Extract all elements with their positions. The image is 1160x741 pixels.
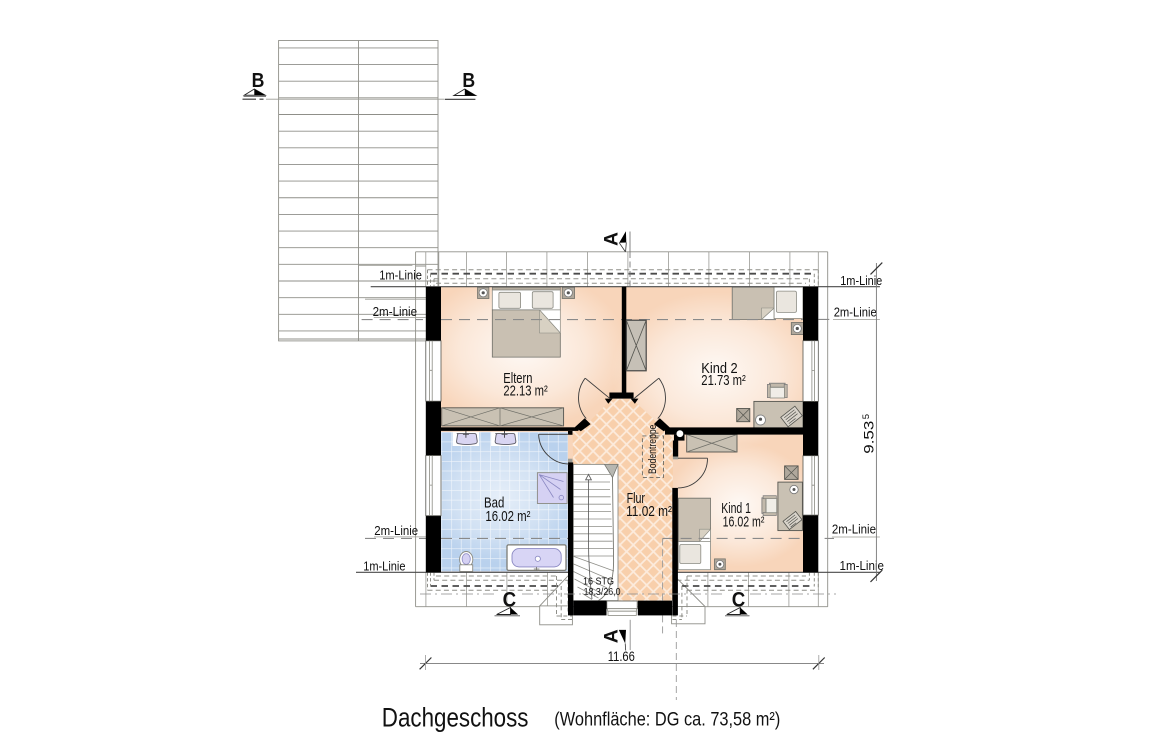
svg-text:2m-Linie: 2m-Linie [374, 523, 418, 538]
svg-text:B: B [252, 70, 265, 92]
svg-text:1m-Linie: 1m-Linie [379, 268, 422, 283]
svg-text:Dachgeschoss: Dachgeschoss [382, 703, 529, 733]
svg-text:(Wohnfläche: DG ca. 73,58 m²): (Wohnfläche: DG ca. 73,58 m²) [554, 710, 780, 731]
svg-text:22.13 m²: 22.13 m² [503, 384, 547, 400]
svg-text:2m-Linie: 2m-Linie [832, 522, 876, 537]
svg-text:1m-Linie: 1m-Linie [363, 559, 405, 574]
svg-text:16.02 m²: 16.02 m² [485, 509, 530, 525]
svg-text:2m-Linie: 2m-Linie [834, 305, 877, 320]
svg-text:5: 5 [861, 414, 872, 419]
svg-text:1m-Linie: 1m-Linie [840, 558, 885, 573]
svg-text:21.73 m²: 21.73 m² [701, 373, 746, 389]
svg-text:18,3/26,0: 18,3/26,0 [584, 587, 621, 598]
svg-text:A: A [601, 629, 623, 643]
svg-text:16 STG: 16 STG [583, 576, 614, 587]
svg-text:11.66: 11.66 [608, 649, 635, 664]
svg-text:2m-Linie: 2m-Linie [373, 304, 418, 319]
svg-text:11.02 m²: 11.02 m² [626, 504, 672, 520]
svg-text:A: A [601, 232, 623, 246]
svg-text:9.53: 9.53 [861, 421, 877, 454]
svg-text:16.02 m²: 16.02 m² [723, 515, 765, 531]
svg-text:B: B [462, 70, 475, 92]
svg-text:Bodentreppe: Bodentreppe [647, 425, 659, 475]
